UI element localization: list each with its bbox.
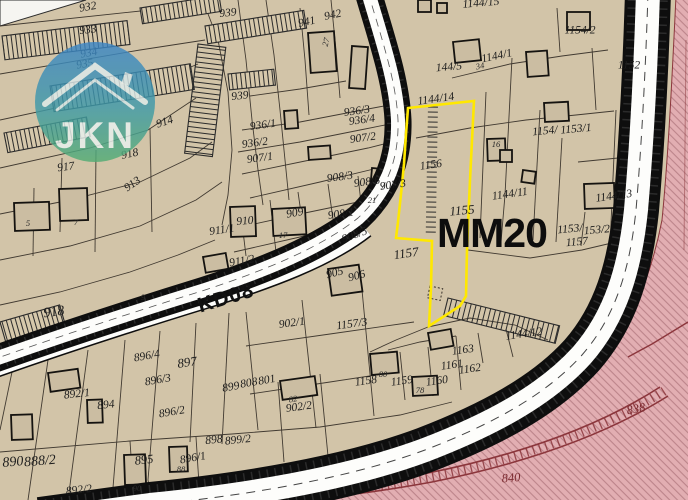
map-label: 16 (492, 140, 501, 149)
map-label: 21 (368, 196, 377, 205)
map-label: 939 (219, 7, 237, 20)
map-label: 90 (133, 484, 142, 493)
map-label: 80 (379, 370, 388, 379)
map-label: 895 (134, 453, 154, 467)
cadastral-map[interactable]: 9329339399419429349351144/15144/51144/11… (0, 0, 688, 500)
map-label: 897 (176, 354, 197, 370)
map-label: 1154/2 (564, 25, 595, 37)
map-label: 17 (279, 231, 288, 240)
map-label: 898 (205, 434, 223, 447)
jkn-logo-watermark: JKN (33, 40, 157, 164)
map-label: 894 (97, 399, 115, 412)
map-label: 918 (43, 305, 66, 322)
map-label: 7 (74, 218, 78, 227)
map-label: 5 (26, 219, 30, 228)
map-label: 933 (79, 24, 97, 37)
map-label: 838 (626, 401, 647, 417)
map-label: 1154/ (532, 125, 558, 139)
map-label: 840 (501, 471, 521, 485)
map-label: 9 (141, 293, 145, 302)
map-label: 34 (475, 61, 485, 71)
map-label: 1152 (618, 60, 640, 72)
map-label: 910 (236, 216, 254, 229)
map-label: 144/5 (435, 61, 462, 75)
map-label: 82 (288, 394, 298, 404)
map-label: 1153/ (557, 223, 583, 237)
logo-text: JKN (55, 115, 135, 157)
zone-label: MM20 (437, 213, 547, 254)
map-label: 890 (2, 455, 24, 471)
map-label: 939 (231, 90, 249, 103)
map-label: 27 (321, 37, 331, 47)
map-label: 1157 (393, 245, 420, 261)
map-label: 1157 (565, 236, 588, 249)
map-label: 888/2 (24, 454, 57, 471)
map-label: 88 (177, 465, 186, 474)
map-label: 78 (416, 386, 425, 395)
